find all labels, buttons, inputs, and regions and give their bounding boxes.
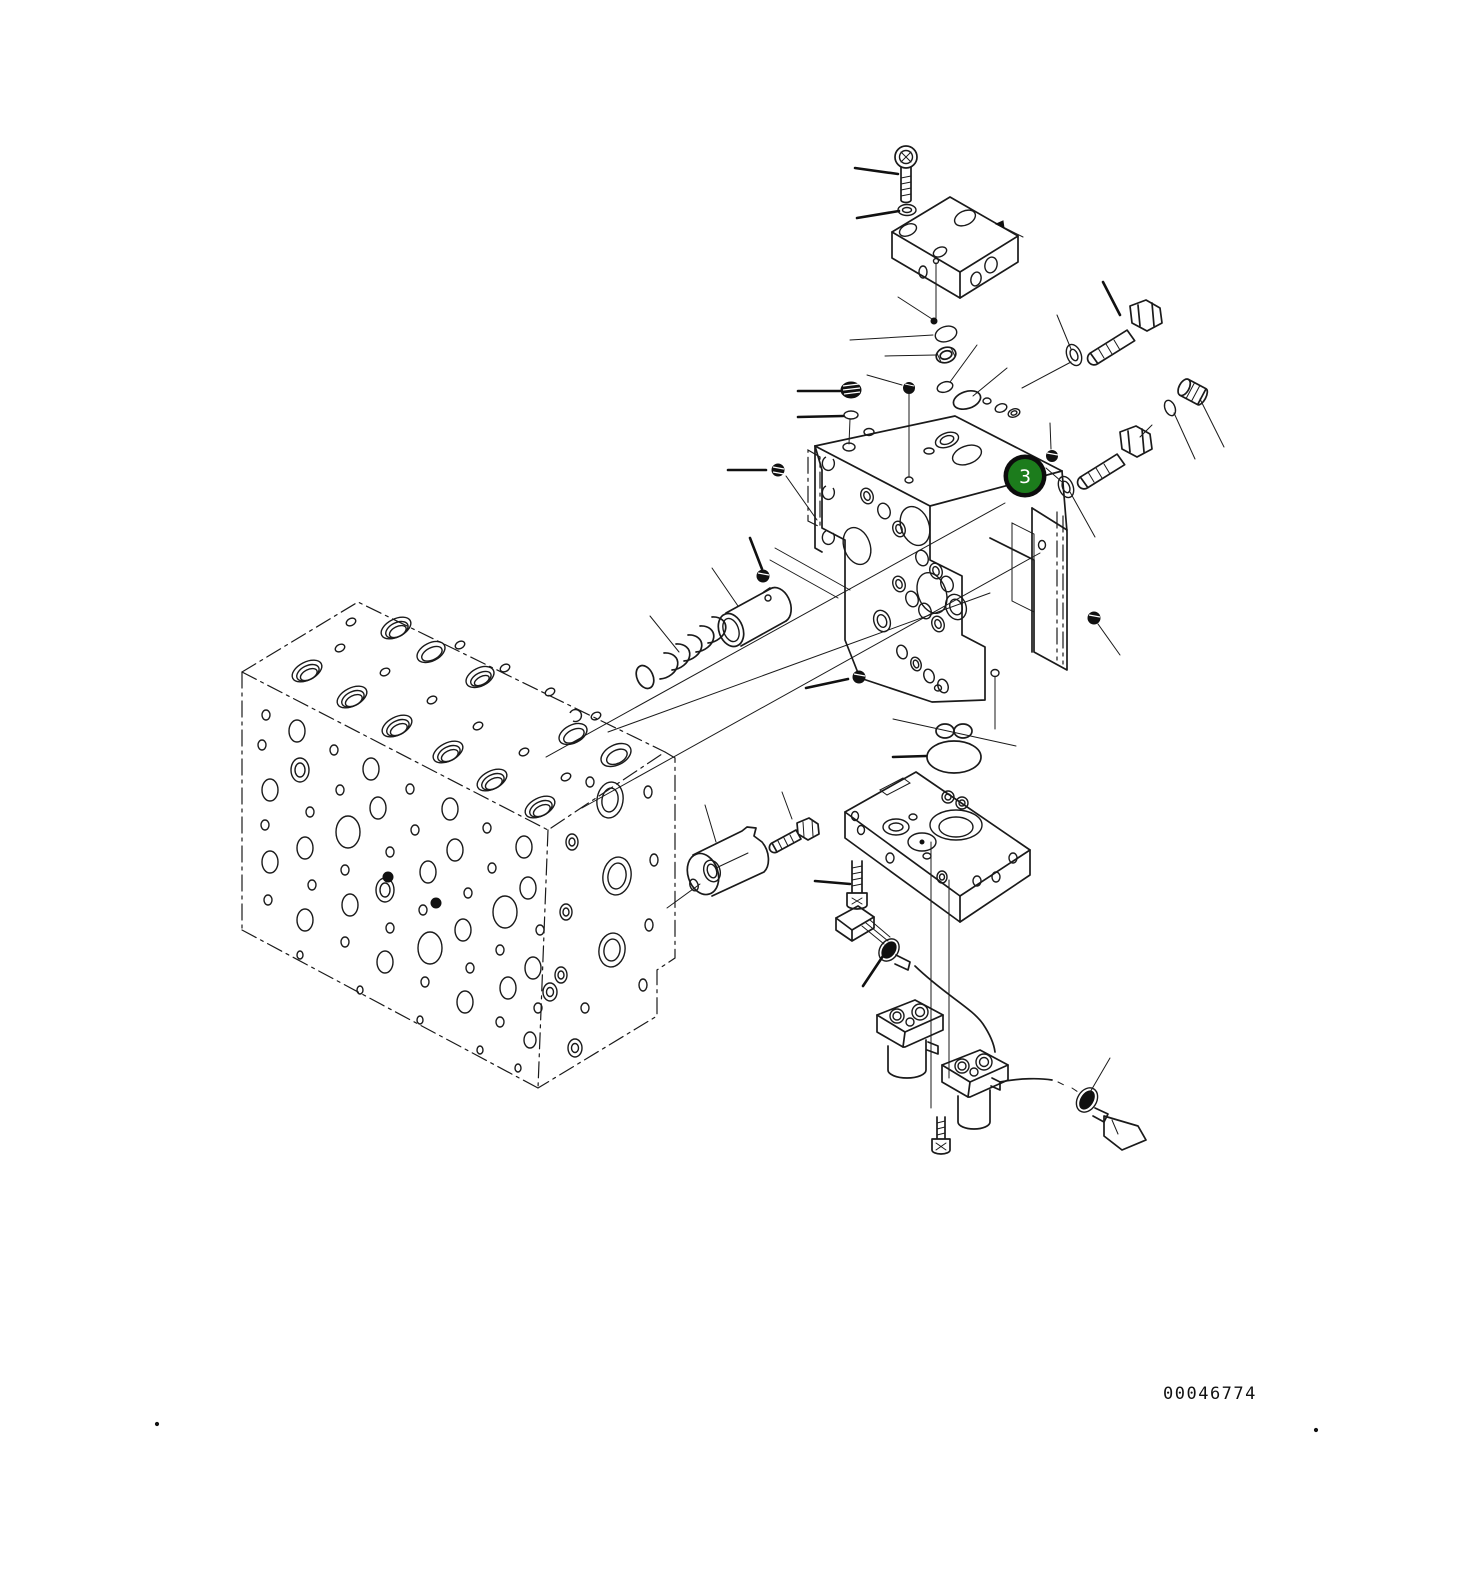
o-ring-plug [1162, 399, 1177, 418]
parts-diagram-page: 3 00046774 [0, 0, 1466, 1582]
wire-connector [836, 906, 910, 970]
plug-o-ring [844, 411, 858, 419]
set-screw-top [904, 383, 915, 478]
hose-connector [1072, 1084, 1146, 1150]
backup-ring [934, 345, 958, 365]
drawing-number: 00046774 [1163, 1384, 1257, 1404]
cap-bolt [769, 818, 819, 853]
body-top-ports [843, 398, 1021, 483]
washer-lower [1055, 474, 1076, 500]
o-ring-pair [936, 724, 972, 738]
solenoid-valve-left [877, 1000, 943, 1078]
hose [915, 966, 1078, 1092]
o-ring-plate [927, 741, 981, 773]
solenoid-valve-right [942, 1050, 1008, 1129]
set-screw-left-upper [772, 464, 817, 520]
callout-balloon[interactable]: 3 [1004, 455, 1047, 498]
drain-bolt [932, 1117, 950, 1154]
exploded-view-drawing: 3 00046774 [0, 0, 1466, 1582]
plug-with-threads [841, 382, 861, 444]
washer-top [898, 205, 916, 216]
right-face-ports [543, 777, 658, 1057]
spring [633, 617, 726, 691]
set-screw-body-bottom [853, 671, 865, 683]
set-screw-near-callout [1047, 423, 1059, 462]
spool-sleeve [714, 588, 791, 651]
front-face-ports [258, 710, 544, 1072]
set-screw-body-right [1088, 612, 1120, 655]
spool-bores [838, 486, 970, 694]
direction-arrow [996, 221, 1004, 228]
callout-number: 3 [1019, 466, 1031, 488]
o-ring-small [936, 380, 954, 394]
set-screw-left-lower [757, 570, 769, 582]
hex-bolt-lower [1077, 426, 1152, 489]
hex-bolt-upper [1087, 300, 1162, 365]
o-ring-small-top [933, 323, 959, 344]
top-face-ports [289, 613, 635, 823]
main-valve-block [242, 602, 675, 1088]
pilot-cover-plate [845, 772, 1030, 922]
plug-right [1176, 377, 1210, 407]
registration-dot-left [155, 1422, 158, 1425]
registration-dot-right [1314, 1428, 1317, 1431]
